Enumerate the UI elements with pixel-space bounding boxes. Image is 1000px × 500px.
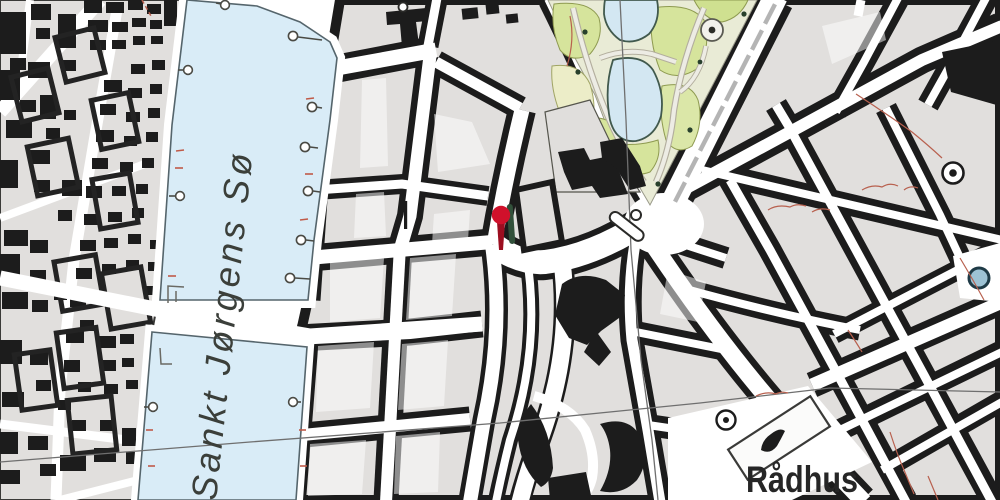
svg-text:Rådhus: Rådhus	[746, 459, 858, 500]
